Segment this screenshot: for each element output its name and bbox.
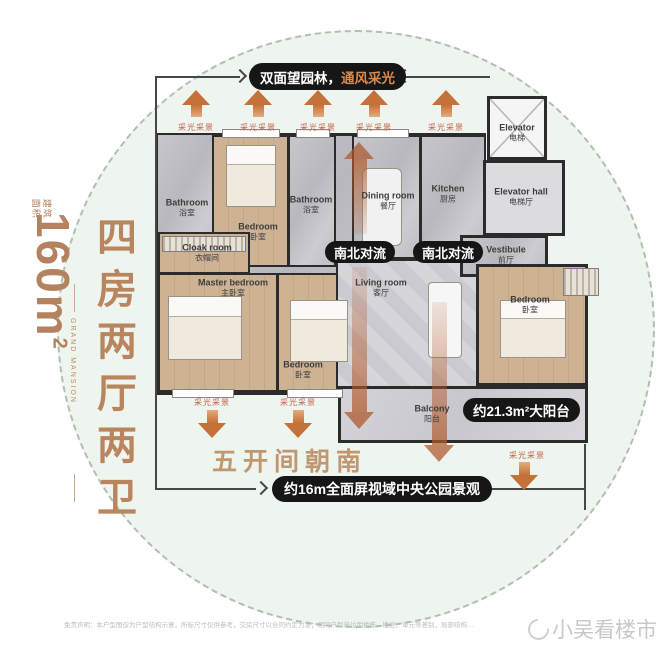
disclaimer-text: 免责声明：本户型图仅为户型结构示意，所标尺寸仅供参考，交房尺寸以合同约定为准；相…	[64, 619, 579, 629]
room-label-elevator-hall: Elevator hall电梯厅	[494, 186, 548, 207]
room-label-bedroom-1: Bedroom卧室	[238, 221, 278, 242]
sun-arrow-down-icon	[198, 410, 226, 438]
dimension-line-bottom-left	[156, 488, 256, 490]
dimension-line-left	[155, 76, 157, 490]
room-label-bathroom-1: Bathroom浴室	[166, 197, 209, 218]
banner-text-orange: 通风采光	[341, 67, 395, 87]
room-label-bathroom-2: Bathroom浴室	[290, 194, 333, 215]
room-label-vestibule: Vestibule前厅	[486, 244, 526, 265]
dimension-line-top-left	[156, 76, 240, 78]
sun-arrow-up-icon	[432, 90, 460, 117]
brand-name: GRAND MANSION	[69, 318, 76, 468]
light-view-label: 采光采景	[194, 397, 230, 408]
watermark-text: 小吴看楼市	[552, 614, 657, 644]
banner-text-white: 双面望园林，	[260, 67, 341, 87]
convection-pill-left: 南北对流	[325, 241, 395, 263]
balcony-area-pill: 约21.3m²大阳台	[463, 398, 580, 422]
light-view-label: 采光采景	[356, 122, 392, 133]
sun-arrow-up-icon	[304, 90, 332, 117]
south-facing-slogan: 五开间朝南	[212, 442, 367, 478]
room-label-cloak-room: Cloak room衣帽间	[182, 242, 232, 263]
poster-canvas: 双面望园林，通风采光 采光采景 采光采景 采光采景 采光采景 采光采景	[0, 0, 660, 660]
light-view-label: 采光采景	[178, 122, 214, 133]
room-label-bedroom-2: Bedroom卧室	[283, 359, 323, 380]
room-label-kitchen: Kitchen厨房	[431, 183, 464, 204]
airflow-arrow-down-icon	[424, 302, 454, 462]
room-label-master-bedroom: Master bedroom主卧室	[198, 277, 268, 298]
convection-pill-right: 南北对流	[413, 241, 483, 263]
sun-arrow-up-icon	[360, 90, 388, 117]
layout-headline: 四房两厅两卫	[84, 216, 142, 528]
top-banner-pill: 双面望园林，通风采光	[249, 63, 406, 90]
bed	[290, 300, 348, 362]
room-label-elevator: Elevator电梯	[499, 122, 535, 143]
bed	[168, 296, 242, 360]
room-label-bedroom-3: Bedroom卧室	[510, 294, 550, 315]
room-label-balcony: Balcony阳台	[414, 403, 449, 424]
light-view-label: 采光采景	[509, 450, 545, 461]
room-label-dining-room: Dining room餐厅	[362, 190, 415, 211]
room-label-living-room: Living room客厅	[355, 277, 407, 298]
stairs-hatch	[563, 268, 599, 296]
light-view-label: 采光采景	[428, 122, 464, 133]
sun-arrow-down-icon	[510, 462, 538, 490]
brand-divider	[74, 474, 75, 502]
park-view-pill: 约16m全面屏视域中央公园景观	[272, 476, 492, 502]
bed	[226, 145, 276, 207]
dimension-line-top-right	[400, 76, 490, 78]
light-view-label: 采光采景	[280, 397, 316, 408]
sun-arrow-up-icon	[182, 90, 210, 117]
light-view-label: 采光采景	[300, 122, 336, 133]
brand-divider	[74, 284, 75, 312]
dimension-tick-right	[584, 444, 586, 510]
light-view-label: 采光采景	[240, 122, 276, 133]
sun-arrow-down-icon	[284, 410, 312, 438]
area-exponent: 2	[48, 338, 70, 351]
sun-arrow-up-icon	[244, 90, 272, 117]
airflow-arrow-up-icon	[344, 142, 374, 234]
